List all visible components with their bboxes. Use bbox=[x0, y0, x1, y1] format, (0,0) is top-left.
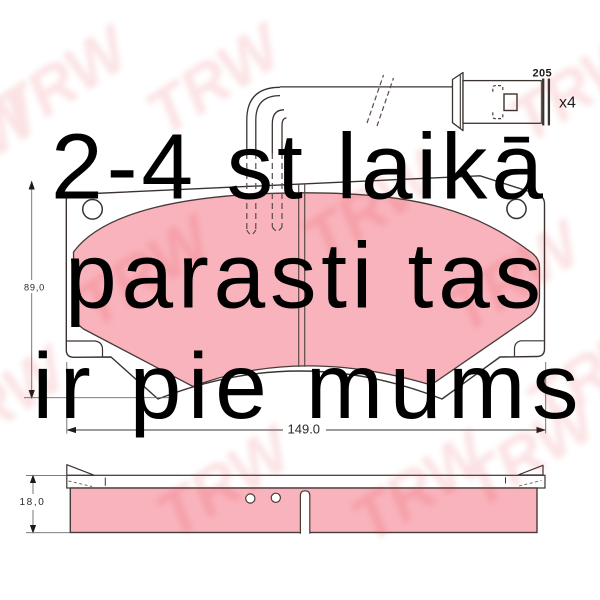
svg-text:parasti tas: parasti tas bbox=[65, 224, 541, 328]
svg-text:18,0: 18,0 bbox=[20, 497, 46, 508]
svg-text:ir pie mums: ir pie mums bbox=[33, 334, 579, 438]
svg-text:2-4 st laikā: 2-4 st laikā bbox=[51, 115, 543, 219]
svg-text:89,0: 89,0 bbox=[24, 283, 45, 293]
